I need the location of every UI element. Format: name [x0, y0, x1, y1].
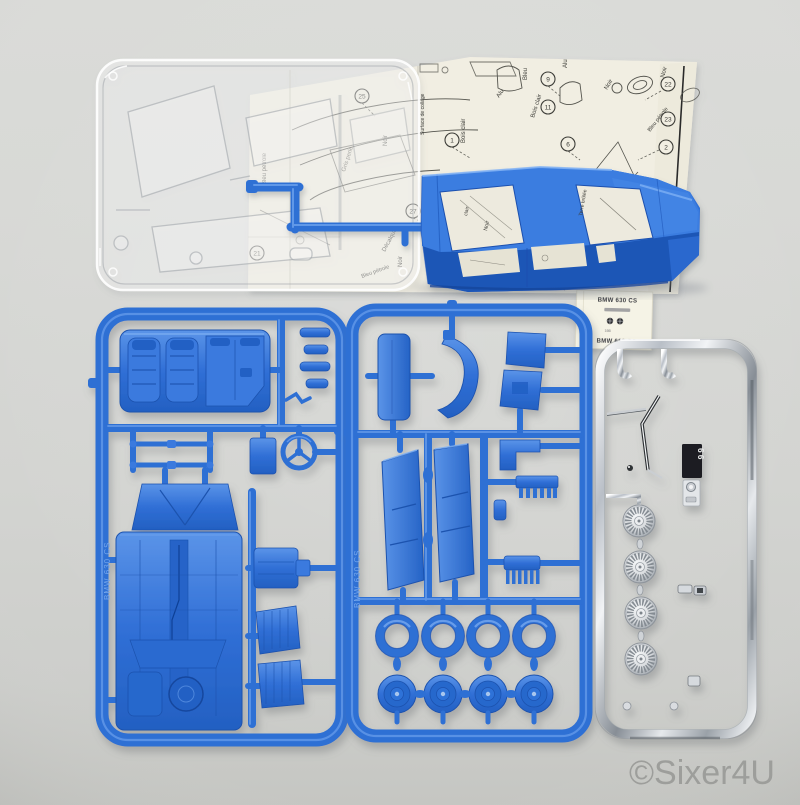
front-panel-part [506, 332, 546, 368]
callout: 22 [661, 77, 675, 91]
chassis-part [116, 532, 242, 730]
callout: 23 [661, 112, 675, 126]
bumper-part [378, 334, 410, 420]
seat-back-part [256, 606, 300, 654]
rear-window-opening: clair Noir [440, 185, 524, 251]
plate-number: 66 [696, 448, 706, 461]
model-kit-photo: Bleu Alu Alu Bois clair Noir Noir Bleu p… [0, 0, 800, 805]
label-alu: Alu [563, 59, 569, 68]
clip-part [494, 500, 506, 520]
wheel-cover-part [625, 597, 657, 629]
callout-number: 11 [545, 105, 552, 112]
car-body-shell: Terre brûlée clair Noir [421, 167, 700, 292]
windscreen-opening: Terre brûlée [576, 185, 653, 245]
callout-number: 9 [546, 77, 550, 84]
callout-number: 1 [450, 138, 454, 145]
callout-number: 23 [664, 117, 672, 124]
decal-fine-print [604, 308, 630, 312]
photo-canvas: Bleu Alu Alu Bois clair Noir Noir Bleu p… [0, 0, 800, 805]
lamp-lens-part [290, 248, 312, 260]
lamp-lens-part [114, 236, 128, 250]
label-bois-clair: Bois clair [461, 119, 467, 143]
callout-number: 6 [566, 142, 570, 149]
sprue-embossed-mark: BMW 630 CS [103, 542, 112, 600]
label-bleu: Bleu [523, 68, 529, 80]
wheel-cover-part [624, 551, 656, 583]
watermark-text: ©Sixer4U [629, 754, 775, 792]
callout-number: 2 [664, 145, 668, 152]
callout: 2 [659, 140, 673, 154]
spare-wheel-well [169, 677, 203, 711]
callout: 6 [561, 137, 575, 151]
decal-number: 166 [604, 329, 610, 333]
callout-number: 22 [664, 82, 672, 89]
callout: 11 [541, 100, 555, 114]
lamp-lens-part [190, 252, 202, 264]
label-surface-de-collage: Surface de collage [420, 93, 426, 135]
clear-sprue [97, 60, 419, 290]
handle-part [688, 676, 700, 686]
firewall-part [132, 484, 238, 530]
seats-part [120, 330, 270, 412]
console-part [250, 438, 276, 474]
callout: 1 [445, 133, 459, 147]
decal-text-top: BMW 630 CS [598, 298, 638, 305]
callout: 9 [541, 72, 555, 86]
wheel-cover-part [625, 643, 657, 675]
wheel-cover-part [623, 505, 655, 537]
sprue-embossed-mark: BMW 630 CS [353, 550, 362, 608]
seat-back-part [258, 660, 304, 708]
